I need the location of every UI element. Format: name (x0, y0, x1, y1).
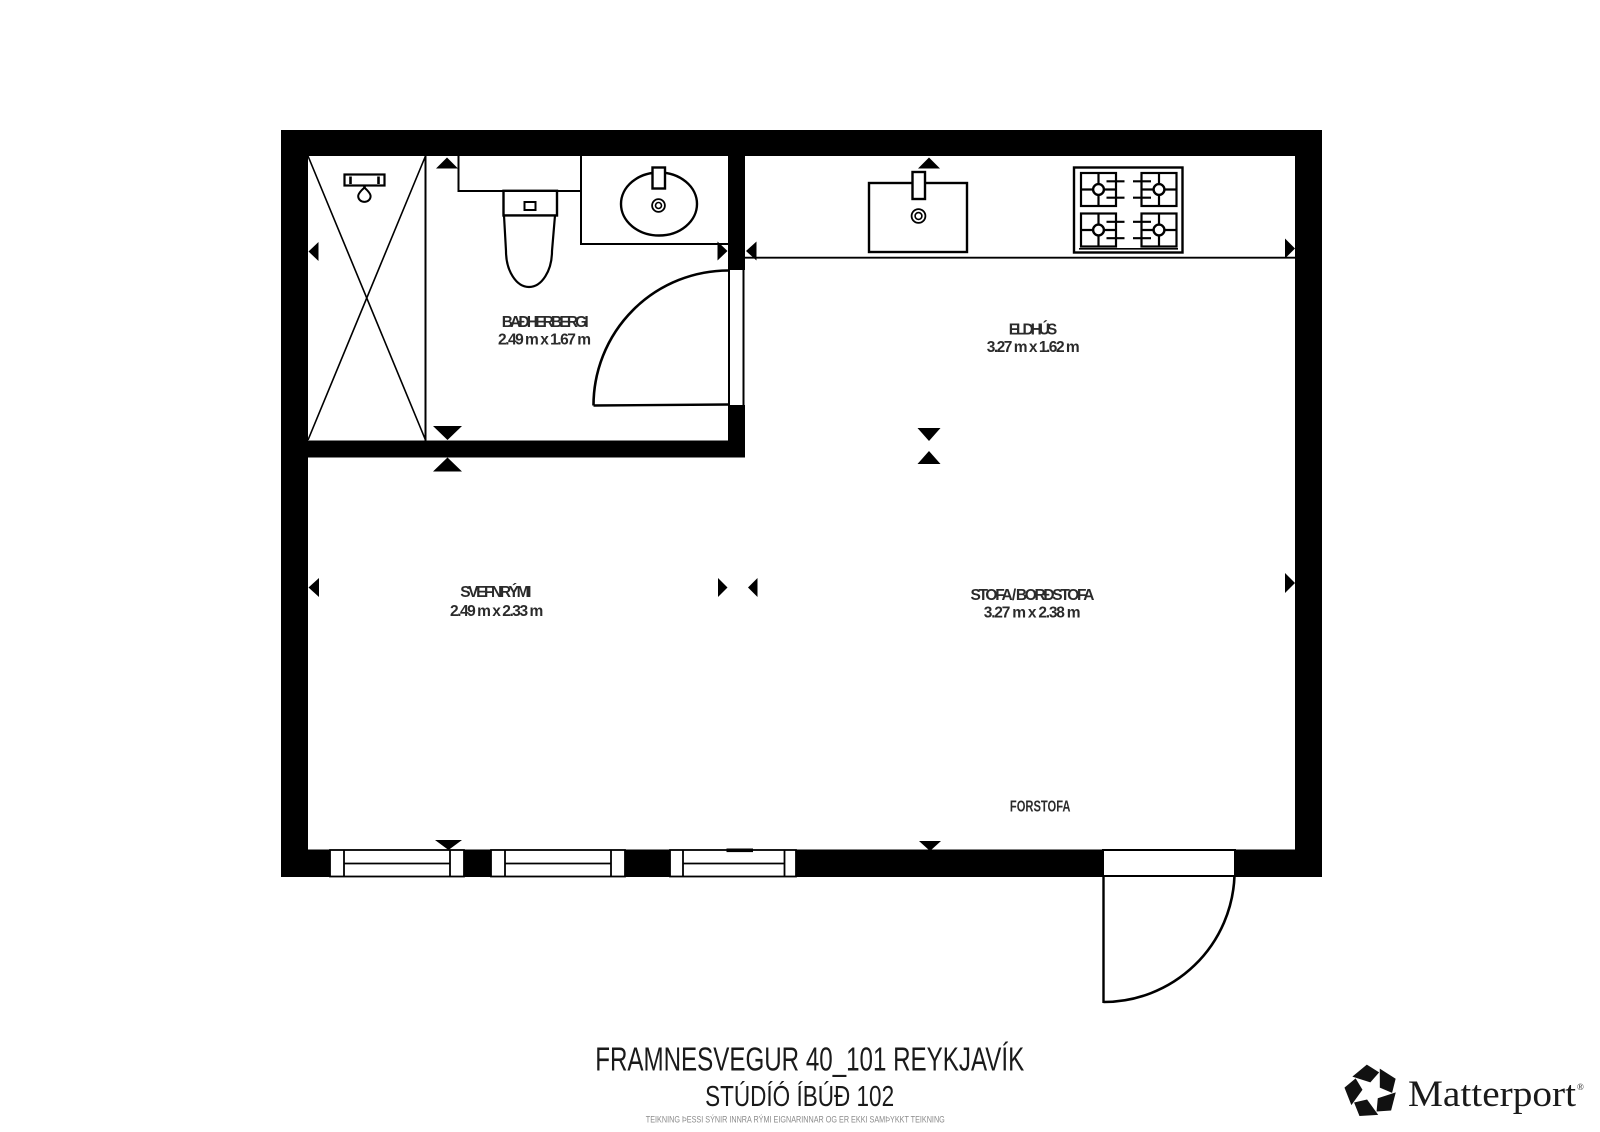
svg-text:STÚDÍÓ ÍBÚÐ 102: STÚDÍÓ ÍBÚÐ 102 (705, 1080, 894, 1113)
svg-text:STOFA / BORÐSTOFA: STOFA / BORÐSTOFA (971, 587, 1095, 604)
svg-text:ELDHÚS: ELDHÚS (1009, 321, 1058, 339)
svg-text:FRAMNESVEGUR 40_101 REYKJAVÍK: FRAMNESVEGUR 40_101 REYKJAVÍK (595, 1041, 1024, 1078)
svg-text:Matterport: Matterport (1408, 1074, 1577, 1115)
svg-text:BAÐHERBERGI: BAÐHERBERGI (502, 314, 589, 331)
svg-text:2.49 m x 1.67 m: 2.49 m x 1.67 m (498, 332, 591, 349)
svg-text:TEIKNING ÞESSI SÝNIR INNRA RÝM: TEIKNING ÞESSI SÝNIR INNRA RÝMI EIGNARIN… (646, 1115, 945, 1126)
svg-text:SVEFNRÝMI: SVEFNRÝMI (460, 583, 531, 601)
svg-text:FORSTOFA: FORSTOFA (1010, 799, 1071, 816)
svg-text:2.49 m x 2.33 m: 2.49 m x 2.33 m (450, 603, 543, 620)
svg-text:3.27 m x 2.38 m: 3.27 m x 2.38 m (984, 605, 1081, 622)
svg-text:3.27 m x 1.62 m: 3.27 m x 1.62 m (987, 339, 1080, 356)
svg-text:®: ® (1577, 1082, 1584, 1092)
